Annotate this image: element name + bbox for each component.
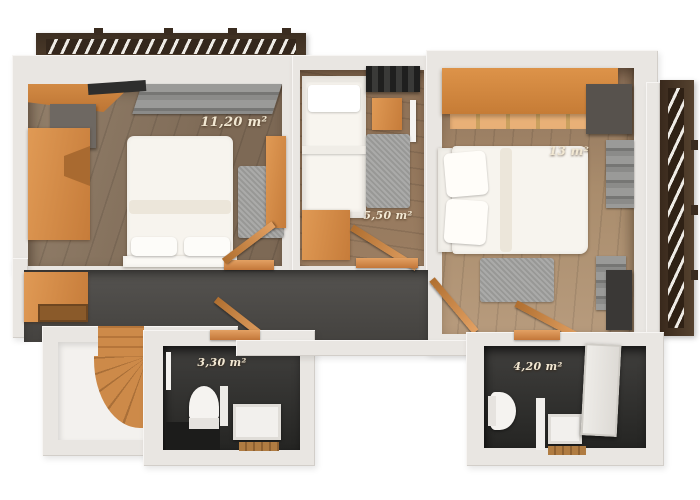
bedroom-left-wardrobe-clothes <box>132 84 282 114</box>
pergola-post <box>228 28 237 35</box>
middle-room-luggage-rack <box>366 66 420 92</box>
pergola-slats <box>46 39 296 54</box>
bedroom-right-pillow <box>444 199 489 246</box>
bedroom-right-tv-unit <box>606 270 632 330</box>
bathroom-left-sink-mat <box>239 442 279 451</box>
bathroom-left-partition <box>220 386 228 426</box>
bathroom-left-sink <box>233 404 281 440</box>
bedroom-left-bed-fold <box>129 200 231 214</box>
bedroom-left-pillow <box>131 237 177 256</box>
bathroom-right-threshold <box>514 330 560 340</box>
bedroom-right-closet-clothes <box>606 140 634 208</box>
bedroom-left-pillow <box>184 237 230 256</box>
middle-room-threshold <box>356 258 418 268</box>
bathroom-left-door-panel <box>166 352 171 390</box>
bathroom-right-partition <box>536 398 545 450</box>
middle-room-bed-pillow <box>308 85 360 112</box>
pergola-post <box>282 28 291 35</box>
middle-room-door-panel <box>410 100 416 142</box>
bathroom-right-sink <box>548 414 582 444</box>
pergola-post <box>164 28 173 35</box>
balcony-railing-slats <box>668 88 684 328</box>
bedroom-left-bed-headboard <box>123 256 237 267</box>
balcony-post <box>691 205 698 215</box>
bathroom-right-shower-column <box>581 343 622 437</box>
bedroom-left-wardrobe <box>28 128 90 240</box>
middle-room-rug <box>366 134 410 208</box>
pergola-post <box>94 28 103 35</box>
bathroom-right-toilet-base <box>488 396 496 426</box>
balcony-wall <box>646 82 660 336</box>
middle-room-bench <box>302 210 350 260</box>
bedroom-left-door-threshold <box>224 260 274 270</box>
bedroom-right-corner-unit <box>586 84 632 134</box>
bedroom-right-rug <box>480 258 554 302</box>
balcony-post <box>691 270 698 280</box>
balcony-post <box>691 140 698 150</box>
hallway-bottom-wall <box>236 340 472 356</box>
bathroom-left-threshold <box>210 330 260 340</box>
middle-room-nightstand <box>372 98 402 130</box>
bedroom-right-bed-fold <box>500 148 512 252</box>
bathroom-left-toilet-tank <box>189 418 219 429</box>
floor-plan: 11,20 m² 5,50 m² 13 m² 3,30 m² <box>0 0 700 500</box>
bedroom-left-side-cabinet <box>266 136 286 228</box>
stair-straight-steps <box>98 326 144 358</box>
middle-room-bed-rail <box>302 146 366 154</box>
bathroom-right-sink-mat <box>548 446 586 455</box>
bedroom-right-pillow <box>443 150 489 197</box>
bathroom-left-toilet <box>189 386 219 420</box>
hallway-cabinet-front <box>38 304 88 322</box>
